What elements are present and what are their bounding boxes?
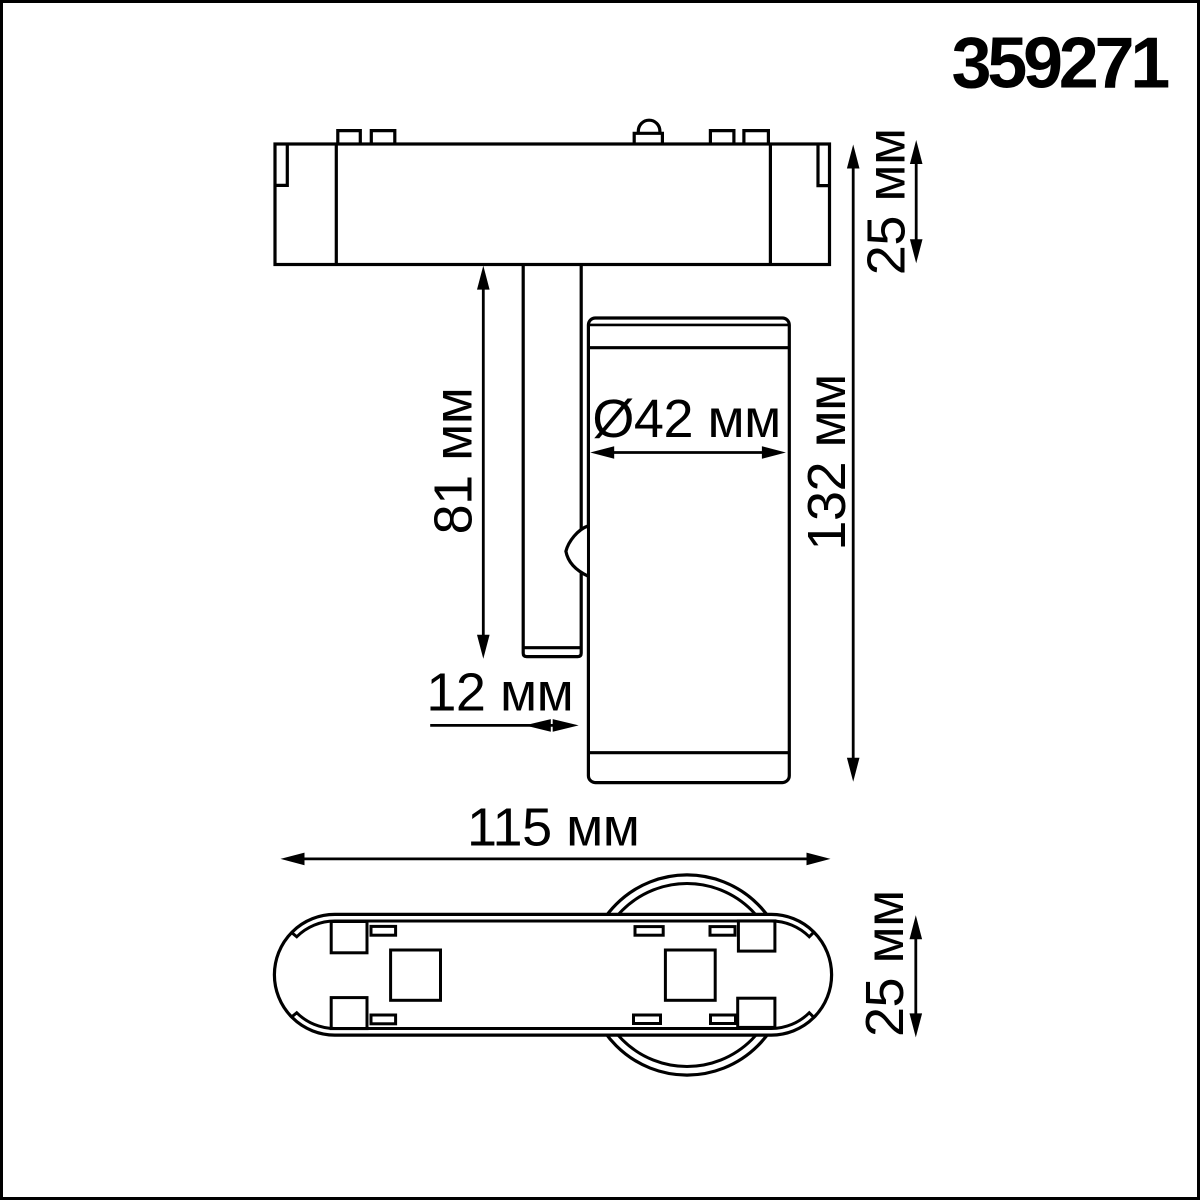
svg-text:115 мм: 115 мм (467, 798, 639, 858)
svg-text:25 мм: 25 мм (856, 128, 916, 275)
svg-text:Ø42 мм: Ø42 мм (592, 389, 780, 449)
svg-text:81 мм: 81 мм (424, 388, 484, 535)
svg-text:359271: 359271 (952, 23, 1170, 103)
svg-text:12 мм: 12 мм (426, 663, 573, 723)
svg-text:132 мм: 132 мм (797, 374, 857, 550)
svg-text:25 мм: 25 мм (855, 890, 915, 1037)
